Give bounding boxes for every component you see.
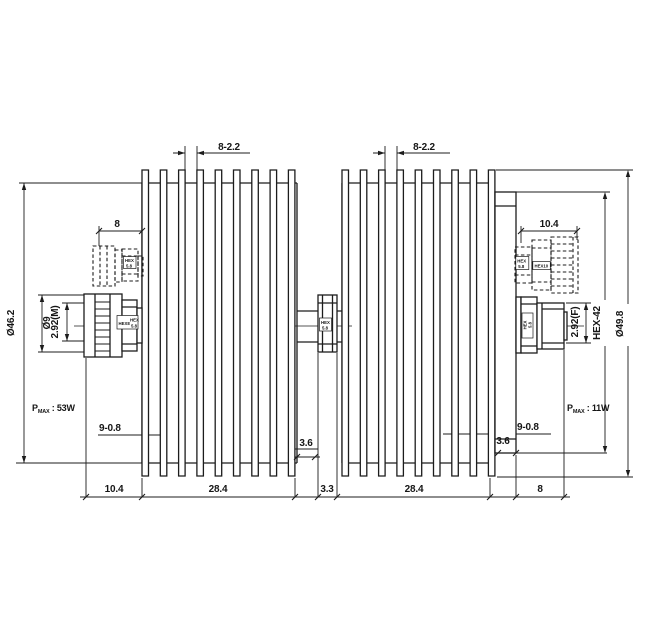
chain-left-body-label: 28.4 [209, 484, 228, 495]
left-phantom-hex-label-1: HEX [125, 258, 134, 263]
right-phantom-hex-label-a2: 5.8 [518, 264, 525, 269]
chain-right-connector-label: 8 [537, 484, 543, 495]
left-diameter-label: Ø46.2 [6, 309, 17, 336]
dimension-drawing: HEX 5.8 HEX8 HEX 5.8 HEX 5.8 HEX [0, 0, 652, 643]
coupling-hex-label-2: 5.8 [322, 326, 329, 331]
left-connector-hex-label-a: HEX8 [119, 321, 131, 326]
hex-endcap-body [495, 192, 516, 453]
right-interface-label: 2.92(F) [570, 307, 581, 338]
fins-left-label: 9-0.8 [99, 423, 121, 434]
right-fins [342, 170, 495, 476]
step-right-label: 3.6 [496, 436, 510, 447]
right-diameter-label: Ø49.8 [615, 310, 626, 337]
chain-left-connector-label: 10.4 [105, 484, 124, 495]
coupling-hex-label-1: HEX [321, 320, 330, 325]
power-left-label: PMAX : 53W [32, 403, 75, 415]
right-phantom-connector: HEX 5.8 HEX10 [515, 237, 578, 293]
left-heatsink [142, 170, 297, 476]
chain-right-body-label: 28.4 [405, 484, 424, 495]
hex-flats-label: HEX-42 [592, 305, 603, 339]
center-coupling: HEX 5.8 [297, 295, 342, 352]
fin-slot-right-label: 8-2.2 [413, 142, 435, 153]
right-phantom-hex-label-b: HEX10 [535, 264, 549, 269]
left-connector-hex-label-b1: HEX [130, 318, 139, 323]
drawing-canvas: HEX 5.8 HEX8 HEX 5.8 HEX 5.8 HEX [0, 0, 652, 643]
right-heatsink [342, 170, 516, 476]
left-connector: HEX8 HEX 5.8 [84, 294, 142, 357]
right-connector-barrel [537, 303, 564, 349]
right-connector-flange [516, 297, 521, 353]
left-phantom-collar [115, 250, 122, 282]
right-hex-endcap [495, 192, 516, 453]
fins-right-label: 9-0.8 [517, 422, 539, 433]
right-connector-tip [564, 312, 567, 340]
step-left-label: 3.6 [299, 438, 313, 449]
left-phantom-body [93, 246, 115, 286]
power-right-label: PMAX : 11W [567, 403, 610, 415]
right-phantom-hex-label-a1: HEX [517, 259, 526, 264]
left-phantom-hex-label-2: 5.8 [126, 264, 133, 269]
left-interface-label: 2.92(M) [50, 305, 61, 338]
left-connector-hex-label-b2: 5.8 [131, 324, 138, 329]
right-connector-hex-label-2: 5.8 [528, 321, 533, 328]
conn-top-right-label: 10.4 [540, 219, 559, 230]
left-connector-knurl [84, 294, 122, 357]
chain-coupling-label: 3.3 [320, 484, 334, 495]
left-phantom-body-lines [100, 246, 107, 286]
right-phantom-threads [551, 237, 573, 293]
left-phantom-connector: HEX 5.8 [93, 246, 143, 286]
right-connector: HEX 5.8 [516, 297, 567, 353]
conn-top-left-label: 8 [114, 219, 120, 230]
left-fins [142, 170, 295, 476]
fin-slot-left-label: 8-2.2 [218, 142, 240, 153]
